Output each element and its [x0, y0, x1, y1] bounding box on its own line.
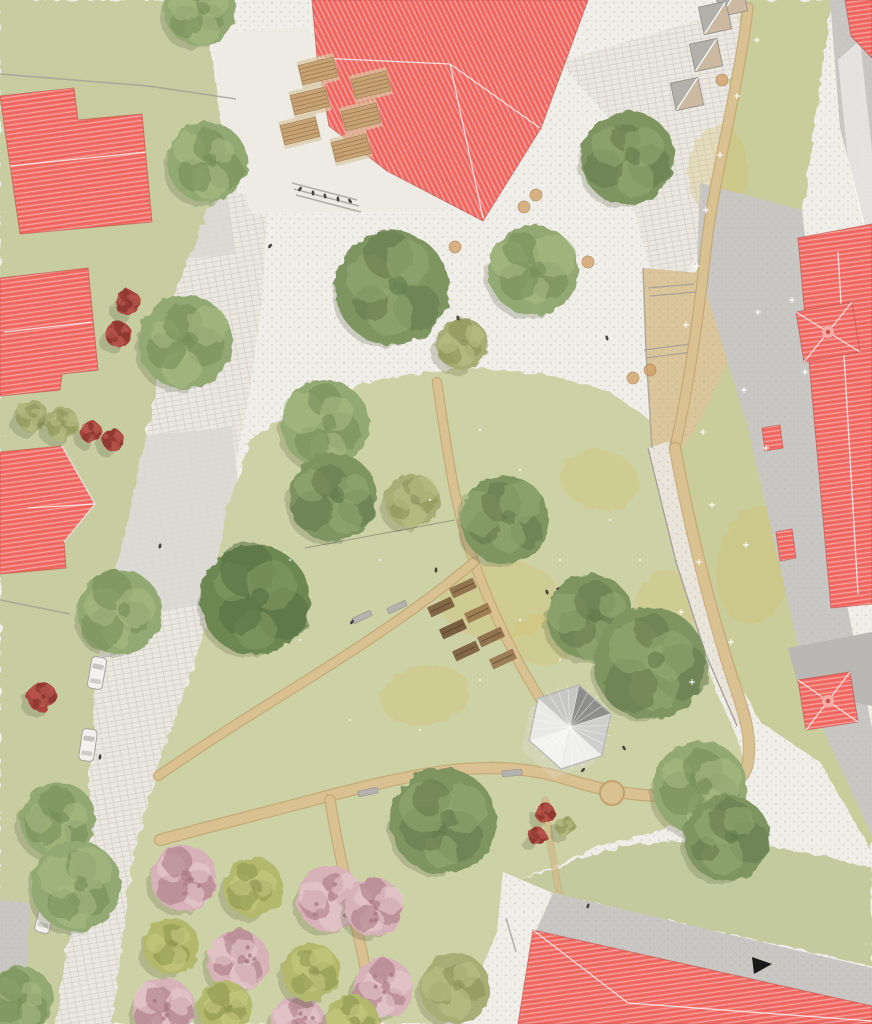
cherry-blossom-dot [303, 1016, 307, 1020]
tree-core [330, 488, 344, 502]
lawn-flower-dot [479, 429, 481, 431]
cherry-tree-core [372, 901, 381, 910]
tree-core [182, 332, 197, 347]
tree-foliage-blob [599, 592, 626, 619]
market-stall [689, 38, 722, 71]
market-stall [670, 77, 703, 110]
cafe-parasol [716, 74, 728, 86]
flower-center [685, 324, 687, 326]
building-east-annex-1 [762, 425, 783, 451]
flower-center [756, 39, 758, 41]
lawn-flower-dot [639, 559, 641, 561]
cherry-tree-core [381, 982, 391, 992]
orchard-tree-core [309, 966, 318, 975]
site-plan-svg [0, 0, 872, 1024]
green-bush-core [564, 824, 567, 827]
tree-core [530, 261, 544, 275]
building-east-tower-finial-dot [826, 330, 830, 334]
red-bush-core [536, 834, 539, 837]
orchard-tree-core [169, 940, 178, 949]
tree-core [453, 981, 464, 992]
flower-center [702, 431, 704, 433]
cherry-blossom-dot [312, 912, 316, 916]
lawn-flower-dot [349, 719, 351, 721]
orchard-tree-foliage-blob [291, 975, 311, 995]
cherry-blossom-dot [314, 902, 318, 906]
cherry-blossom-dot [245, 959, 249, 963]
lawn-flower-dot [479, 679, 481, 681]
orchard-tree-core [223, 1002, 232, 1011]
tree-core [18, 993, 29, 1004]
cherry-blossom-dot [165, 1013, 169, 1017]
tree-core [56, 812, 68, 824]
cherry-blossom-dot [161, 1016, 165, 1020]
tree-foliage-blob [339, 474, 370, 505]
cherry-tree-foliage-blob [375, 886, 403, 914]
tree-core [410, 495, 419, 504]
tree-foliage-blob [386, 241, 429, 284]
lawn-flower-dot [559, 659, 561, 661]
red-bush-core [544, 811, 547, 814]
orchard-tree-foliage-blob [208, 983, 230, 1005]
tree-core [252, 588, 270, 606]
cherry-blossom-dot [333, 882, 337, 886]
cafe-parasol [582, 256, 594, 268]
tree-core [198, 2, 210, 14]
cherry-blossom-dot [298, 1011, 302, 1015]
flower-center [765, 447, 767, 449]
cherry-blossom-dot [197, 884, 201, 888]
cherry-blossom-dot [382, 990, 386, 994]
cherry-blossom-dot [190, 877, 194, 881]
cherry-blossom-dot [311, 1016, 315, 1020]
building-south-east-tower-finial-dot [826, 699, 830, 703]
green-bush-core [31, 413, 36, 418]
cherry-blossom-dot [252, 956, 256, 960]
lawn-flower-dot [299, 639, 301, 641]
flower-center [691, 681, 693, 683]
tree-core [647, 651, 665, 669]
tree-core [322, 415, 336, 429]
lawn-flower-dot [559, 559, 561, 561]
lawn-flower-dot [609, 519, 611, 521]
cherry-blossom-dot [182, 892, 186, 896]
red-bush-foliage-blob [129, 294, 141, 306]
wall-strip-south-west-texture [0, 900, 30, 978]
flower-center [696, 265, 698, 267]
cafe-parasol [530, 189, 542, 201]
tree-foliage-blob [504, 232, 538, 266]
lawn-flower-dot [519, 469, 521, 471]
green-bush-foliage-blob [64, 413, 79, 428]
cherry-blossom-dot [373, 984, 377, 988]
flower-center [757, 311, 759, 313]
red-bush-foliage-blob [537, 830, 545, 838]
lawn-flower-dot [519, 619, 521, 621]
green-bush-core [61, 420, 66, 425]
flower-center [743, 389, 745, 391]
flower-center [736, 95, 738, 97]
cherry-blossom-dot [369, 900, 373, 904]
tree-core [460, 339, 468, 347]
tree-core [389, 276, 407, 294]
tree-core [697, 778, 712, 793]
market-stall [698, 1, 731, 34]
tree-core [73, 877, 87, 891]
flower-center [705, 209, 707, 211]
lawn-flower-dot [429, 499, 431, 501]
red-bush-core [41, 694, 46, 699]
flower-center [680, 611, 682, 613]
tree-core [587, 608, 601, 622]
cherry-blossom-dot [373, 918, 377, 922]
cherry-blossom-dot [246, 945, 250, 949]
lawn-flower-dot [379, 559, 381, 561]
cherry-blossom-dot [152, 999, 156, 1003]
site-plan-stage [0, 0, 872, 1024]
red-bush-core [127, 300, 131, 304]
red-bush-core [112, 438, 116, 442]
tree-core [625, 148, 640, 163]
cherry-blossom-dot [369, 919, 373, 923]
path-plaza-bulge [600, 781, 624, 805]
tree-core [502, 511, 516, 525]
flower-center [730, 641, 732, 643]
cafe-parasol [627, 372, 639, 384]
cafe-parasol [518, 201, 530, 213]
lawn-flower-dot [289, 559, 291, 561]
flower-center [791, 299, 793, 301]
cherry-tree-core [162, 1002, 172, 1012]
flower-center [745, 544, 747, 546]
cherry-blossom-dot [373, 974, 377, 978]
flower-center [804, 371, 806, 373]
lawn-flower-dot [419, 729, 421, 731]
flower-center [719, 154, 721, 156]
cherry-blossom-dot [248, 953, 252, 957]
cafe-parasol [644, 364, 656, 376]
red-bush-core [90, 430, 94, 434]
cherry-blossom-dot [390, 973, 394, 977]
cherry-blossom-dot [373, 912, 377, 916]
flower-center [711, 504, 713, 506]
orchard-tree-core [251, 881, 261, 891]
cherry-tree-core [328, 892, 339, 903]
flower-center [698, 561, 700, 563]
red-bush-foliage-blob [82, 432, 91, 441]
cafe-parasol [449, 241, 461, 253]
tree-core [440, 810, 457, 827]
tree-core [724, 829, 738, 843]
tree-foliage-blob [328, 501, 361, 534]
orchard-tree-foliage-blob [146, 934, 165, 953]
cherry-tree-core [236, 954, 246, 964]
tree-core [117, 603, 130, 616]
tree-core [205, 154, 218, 167]
red-bush-core [117, 331, 121, 335]
building-east-annex-2 [776, 529, 796, 561]
